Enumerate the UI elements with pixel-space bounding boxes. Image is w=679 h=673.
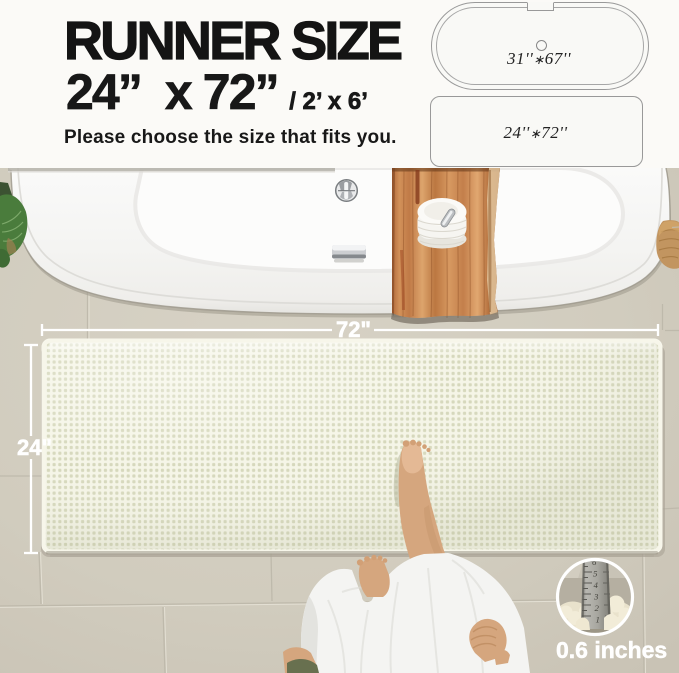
svg-text:72": 72" (336, 317, 371, 342)
svg-text:1: 1 (596, 615, 600, 625)
svg-text:2: 2 (595, 603, 600, 613)
svg-text:3: 3 (593, 592, 599, 602)
svg-text:0.6 inches: 0.6 inches (556, 637, 667, 663)
svg-text:24": 24" (17, 435, 52, 460)
svg-text:5: 5 (593, 569, 598, 579)
svg-text:4: 4 (594, 580, 599, 590)
